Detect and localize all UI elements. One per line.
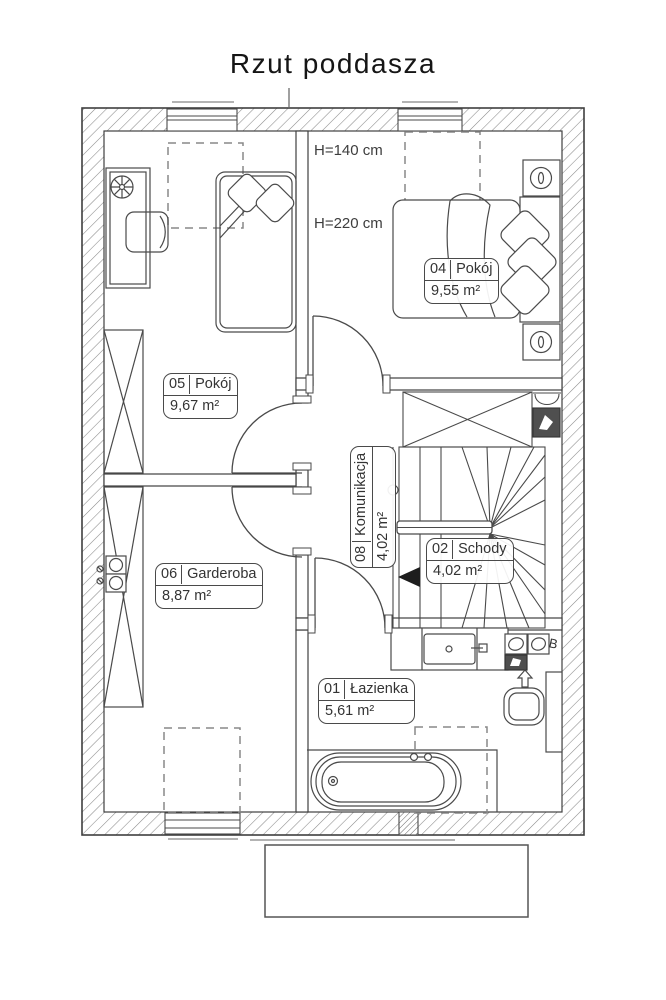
room-05-furniture bbox=[106, 168, 296, 332]
room-label-08: 08Komunikacja 4,02 m² bbox=[350, 446, 396, 568]
room-area: 4,02 m² bbox=[373, 447, 395, 567]
door-room06 bbox=[232, 487, 302, 557]
desk-fan-icon bbox=[111, 176, 133, 198]
height-annotation-140: H=140 cm bbox=[314, 142, 383, 159]
window-room05-top bbox=[167, 109, 237, 131]
desk-chair bbox=[126, 212, 168, 252]
room-number: 04 bbox=[430, 260, 451, 279]
room-number: 05 bbox=[169, 375, 190, 394]
staircase bbox=[388, 392, 561, 628]
upper-flight-treads bbox=[420, 447, 545, 528]
dark-fixture-small bbox=[505, 655, 527, 670]
dormer-outline bbox=[265, 845, 528, 917]
door-room05 bbox=[232, 403, 302, 473]
room-06-fixtures bbox=[97, 330, 143, 707]
desk bbox=[106, 168, 150, 288]
room-area: 8,87 m² bbox=[156, 586, 262, 608]
wardrobe-lower bbox=[104, 487, 143, 707]
room-name: Garderoba bbox=[187, 565, 256, 584]
height-annotation-220: H=220 cm bbox=[314, 215, 383, 232]
room-number: 06 bbox=[161, 565, 182, 584]
bed-pillows bbox=[226, 172, 296, 224]
room-label-05: 05Pokój 9,67 m² bbox=[163, 373, 238, 419]
room-area: 5,61 m² bbox=[319, 701, 414, 723]
nightstand-top bbox=[523, 160, 560, 196]
stairs-direction-arrow bbox=[398, 567, 420, 587]
window-room04-top bbox=[398, 109, 462, 131]
roof-window-room05 bbox=[168, 143, 243, 228]
shaft bbox=[546, 672, 562, 752]
room-label-02: 02Schody 4,02 m² bbox=[426, 538, 514, 584]
room-label-04: 04Pokój 9,55 m² bbox=[424, 258, 499, 304]
roof-window-room06 bbox=[164, 728, 240, 812]
dark-fixture bbox=[533, 408, 560, 437]
room-name: Schody bbox=[458, 540, 506, 559]
room-number: 08 bbox=[352, 541, 371, 562]
toilet bbox=[504, 688, 544, 725]
room-label-06: 06Garderoba 8,87 m² bbox=[155, 563, 263, 609]
nightstand-bottom bbox=[523, 324, 560, 360]
floor-plan-page: Rzut poddasza bbox=[0, 0, 666, 1000]
wardrobe-upper bbox=[104, 330, 143, 473]
room-name: Pokój bbox=[456, 260, 492, 279]
window-room06-bottom bbox=[165, 813, 240, 834]
bathtub bbox=[307, 750, 497, 812]
room-area: 9,55 m² bbox=[425, 281, 498, 303]
room-name: Komunikacja bbox=[352, 453, 371, 536]
room-label-01: 01Łazienka 5,61 m² bbox=[318, 678, 415, 724]
stair-void bbox=[403, 392, 532, 447]
laundry-units bbox=[505, 634, 549, 654]
room-number: 02 bbox=[432, 540, 453, 559]
room-number: 01 bbox=[324, 680, 345, 699]
door-room04 bbox=[313, 316, 383, 386]
wall-pier bbox=[399, 812, 418, 835]
room-name: Łazienka bbox=[350, 680, 408, 699]
vanity-counter bbox=[391, 628, 508, 670]
room-area: 9,67 m² bbox=[164, 396, 237, 418]
room-area: 4,02 m² bbox=[427, 561, 513, 583]
door-bathroom bbox=[315, 558, 385, 628]
room-name: Pokój bbox=[195, 375, 231, 394]
stair-handrail bbox=[397, 521, 492, 534]
corner-basin bbox=[533, 393, 561, 405]
exhaust-arrow-up bbox=[518, 670, 532, 687]
